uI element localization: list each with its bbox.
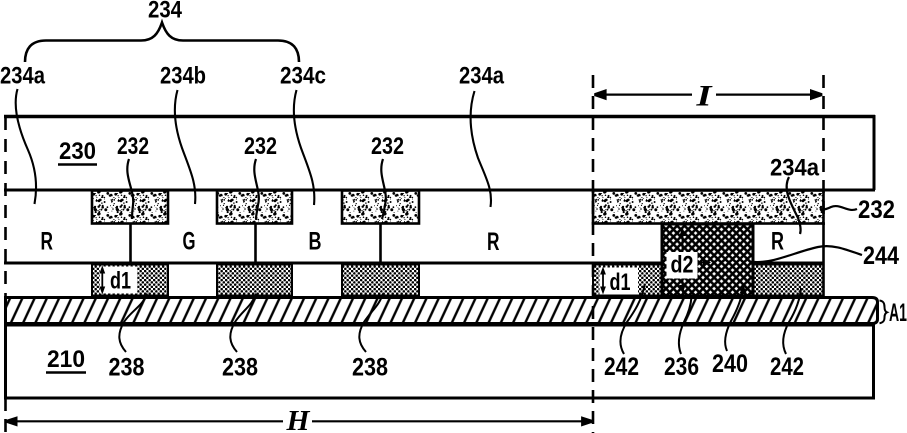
svg-text:242: 242 (604, 353, 639, 381)
svg-text:R: R (487, 228, 500, 256)
svg-text:238: 238 (222, 354, 258, 382)
svg-text:232: 232 (858, 196, 895, 224)
svg-text:I: I (695, 80, 713, 113)
svg-text:230: 230 (59, 138, 96, 165)
svg-text:234: 234 (148, 0, 183, 24)
svg-text:236: 236 (664, 353, 699, 381)
svg-text:232: 232 (117, 133, 149, 160)
svg-text:d1: d1 (110, 268, 131, 295)
svg-text:R: R (41, 228, 54, 256)
svg-text:244: 244 (863, 242, 899, 270)
svg-text:232: 232 (371, 133, 404, 160)
svg-text:232: 232 (244, 133, 277, 160)
svg-text:210: 210 (47, 346, 85, 373)
svg-text:234a: 234a (0, 63, 46, 90)
svg-text:d1: d1 (610, 269, 631, 296)
svg-text:R: R (771, 228, 784, 256)
svg-text:H: H (285, 406, 310, 433)
svg-text:242: 242 (770, 353, 804, 381)
svg-text:B: B (309, 228, 322, 256)
svg-text:234b: 234b (160, 63, 206, 90)
svg-text:238: 238 (352, 354, 388, 382)
svg-text:G: G (183, 228, 196, 256)
svg-text:234c: 234c (280, 63, 326, 90)
svg-text:d2: d2 (671, 252, 694, 279)
svg-text:A1: A1 (889, 299, 907, 327)
svg-text:234a: 234a (770, 155, 820, 182)
svg-text:240: 240 (712, 350, 748, 378)
svg-text:234a: 234a (459, 63, 505, 90)
svg-text:238: 238 (109, 354, 145, 382)
